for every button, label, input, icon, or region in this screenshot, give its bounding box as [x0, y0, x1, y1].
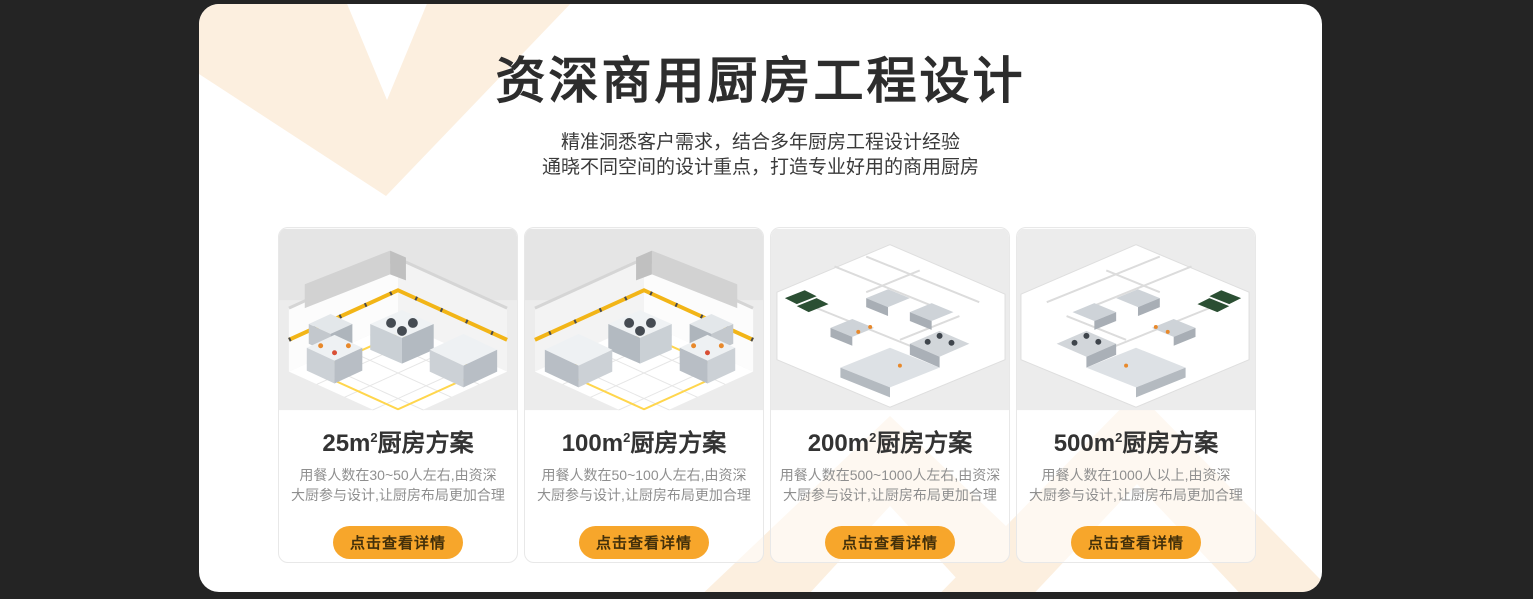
- kitchen-render-image-100m2: [525, 228, 763, 411]
- card-title-superscript: 2: [370, 430, 377, 445]
- plan-cards-row: 25m2厨房方案 用餐人数在30~50人左右,由资深大厨参与设计,让厨房布局更加…: [278, 227, 1256, 563]
- view-details-button[interactable]: 点击查看详情: [825, 526, 955, 559]
- card-description-line2: 大厨参与设计,让厨房布局更加合理: [783, 487, 997, 503]
- card-description-line2: 大厨参与设计,让厨房布局更加合理: [291, 487, 505, 503]
- card-title-suffix: 厨房方案: [630, 430, 726, 457]
- card-title-suffix: 厨房方案: [876, 430, 972, 457]
- card-description-line1: 用餐人数在30~50人左右,由资深: [299, 467, 496, 483]
- section-subtitle: 精准洞悉客户需求，结合多年厨房工程设计经验 通晓不同空间的设计重点，打造专业好用…: [199, 130, 1322, 180]
- card-title: 25m2厨房方案: [279, 424, 517, 458]
- card-title: 500m2厨房方案: [1017, 424, 1255, 458]
- card-description-line1: 用餐人数在500~1000人左右,由资深: [780, 467, 1001, 483]
- card-title-text: 200m: [808, 430, 869, 457]
- card-title-text: 25m: [322, 430, 370, 457]
- kitchen-render-image-500m2: [1017, 228, 1255, 411]
- kitchen-render-image-25m2: [279, 228, 517, 411]
- card-title: 200m2厨房方案: [771, 424, 1009, 458]
- view-details-button[interactable]: 点击查看详情: [579, 526, 709, 559]
- card-title: 100m2厨房方案: [525, 424, 763, 458]
- card-description-line1: 用餐人数在50~100人左右,由资深: [542, 467, 747, 483]
- card-title-suffix: 厨房方案: [1122, 430, 1218, 457]
- kitchen-plan-card-500m2: 500m2厨房方案 用餐人数在1000人以上,由资深大厨参与设计,让厨房布局更加…: [1016, 227, 1256, 563]
- card-title-text: 500m: [1054, 430, 1115, 457]
- card-description: 用餐人数在1000人以上,由资深大厨参与设计,让厨房布局更加合理: [1021, 465, 1251, 505]
- content-panel: 资深商用厨房工程设计 精准洞悉客户需求，结合多年厨房工程设计经验 通晓不同空间的…: [199, 4, 1322, 592]
- kitchen-plan-card-200m2: 200m2厨房方案 用餐人数在500~1000人左右,由资深大厨参与设计,让厨房…: [770, 227, 1010, 563]
- subtitle-line-2: 通晓不同空间的设计重点，打造专业好用的商用厨房: [199, 155, 1322, 180]
- kitchen-plan-card-100m2: 100m2厨房方案 用餐人数在50~100人左右,由资深大厨参与设计,让厨房布局…: [524, 227, 764, 563]
- card-description: 用餐人数在50~100人左右,由资深大厨参与设计,让厨房布局更加合理: [529, 465, 759, 505]
- card-description-line1: 用餐人数在1000人以上,由资深: [1041, 467, 1230, 483]
- card-title-text: 100m: [562, 430, 623, 457]
- card-description-line2: 大厨参与设计,让厨房布局更加合理: [1029, 487, 1243, 503]
- view-details-button[interactable]: 点击查看详情: [333, 526, 463, 559]
- view-details-button[interactable]: 点击查看详情: [1071, 526, 1201, 559]
- card-description: 用餐人数在30~50人左右,由资深大厨参与设计,让厨房布局更加合理: [283, 465, 513, 505]
- kitchen-plan-card-25m2: 25m2厨房方案 用餐人数在30~50人左右,由资深大厨参与设计,让厨房布局更加…: [278, 227, 518, 563]
- page-background: { "theme": { "page_background": "#242424…: [0, 0, 1533, 599]
- section-title: 资深商用厨房工程设计: [199, 50, 1322, 112]
- card-description: 用餐人数在500~1000人左右,由资深大厨参与设计,让厨房布局更加合理: [775, 465, 1005, 505]
- card-title-suffix: 厨房方案: [378, 430, 474, 457]
- subtitle-line-1: 精准洞悉客户需求，结合多年厨房工程设计经验: [199, 130, 1322, 155]
- card-description-line2: 大厨参与设计,让厨房布局更加合理: [537, 487, 751, 503]
- kitchen-render-image-200m2: [771, 228, 1009, 411]
